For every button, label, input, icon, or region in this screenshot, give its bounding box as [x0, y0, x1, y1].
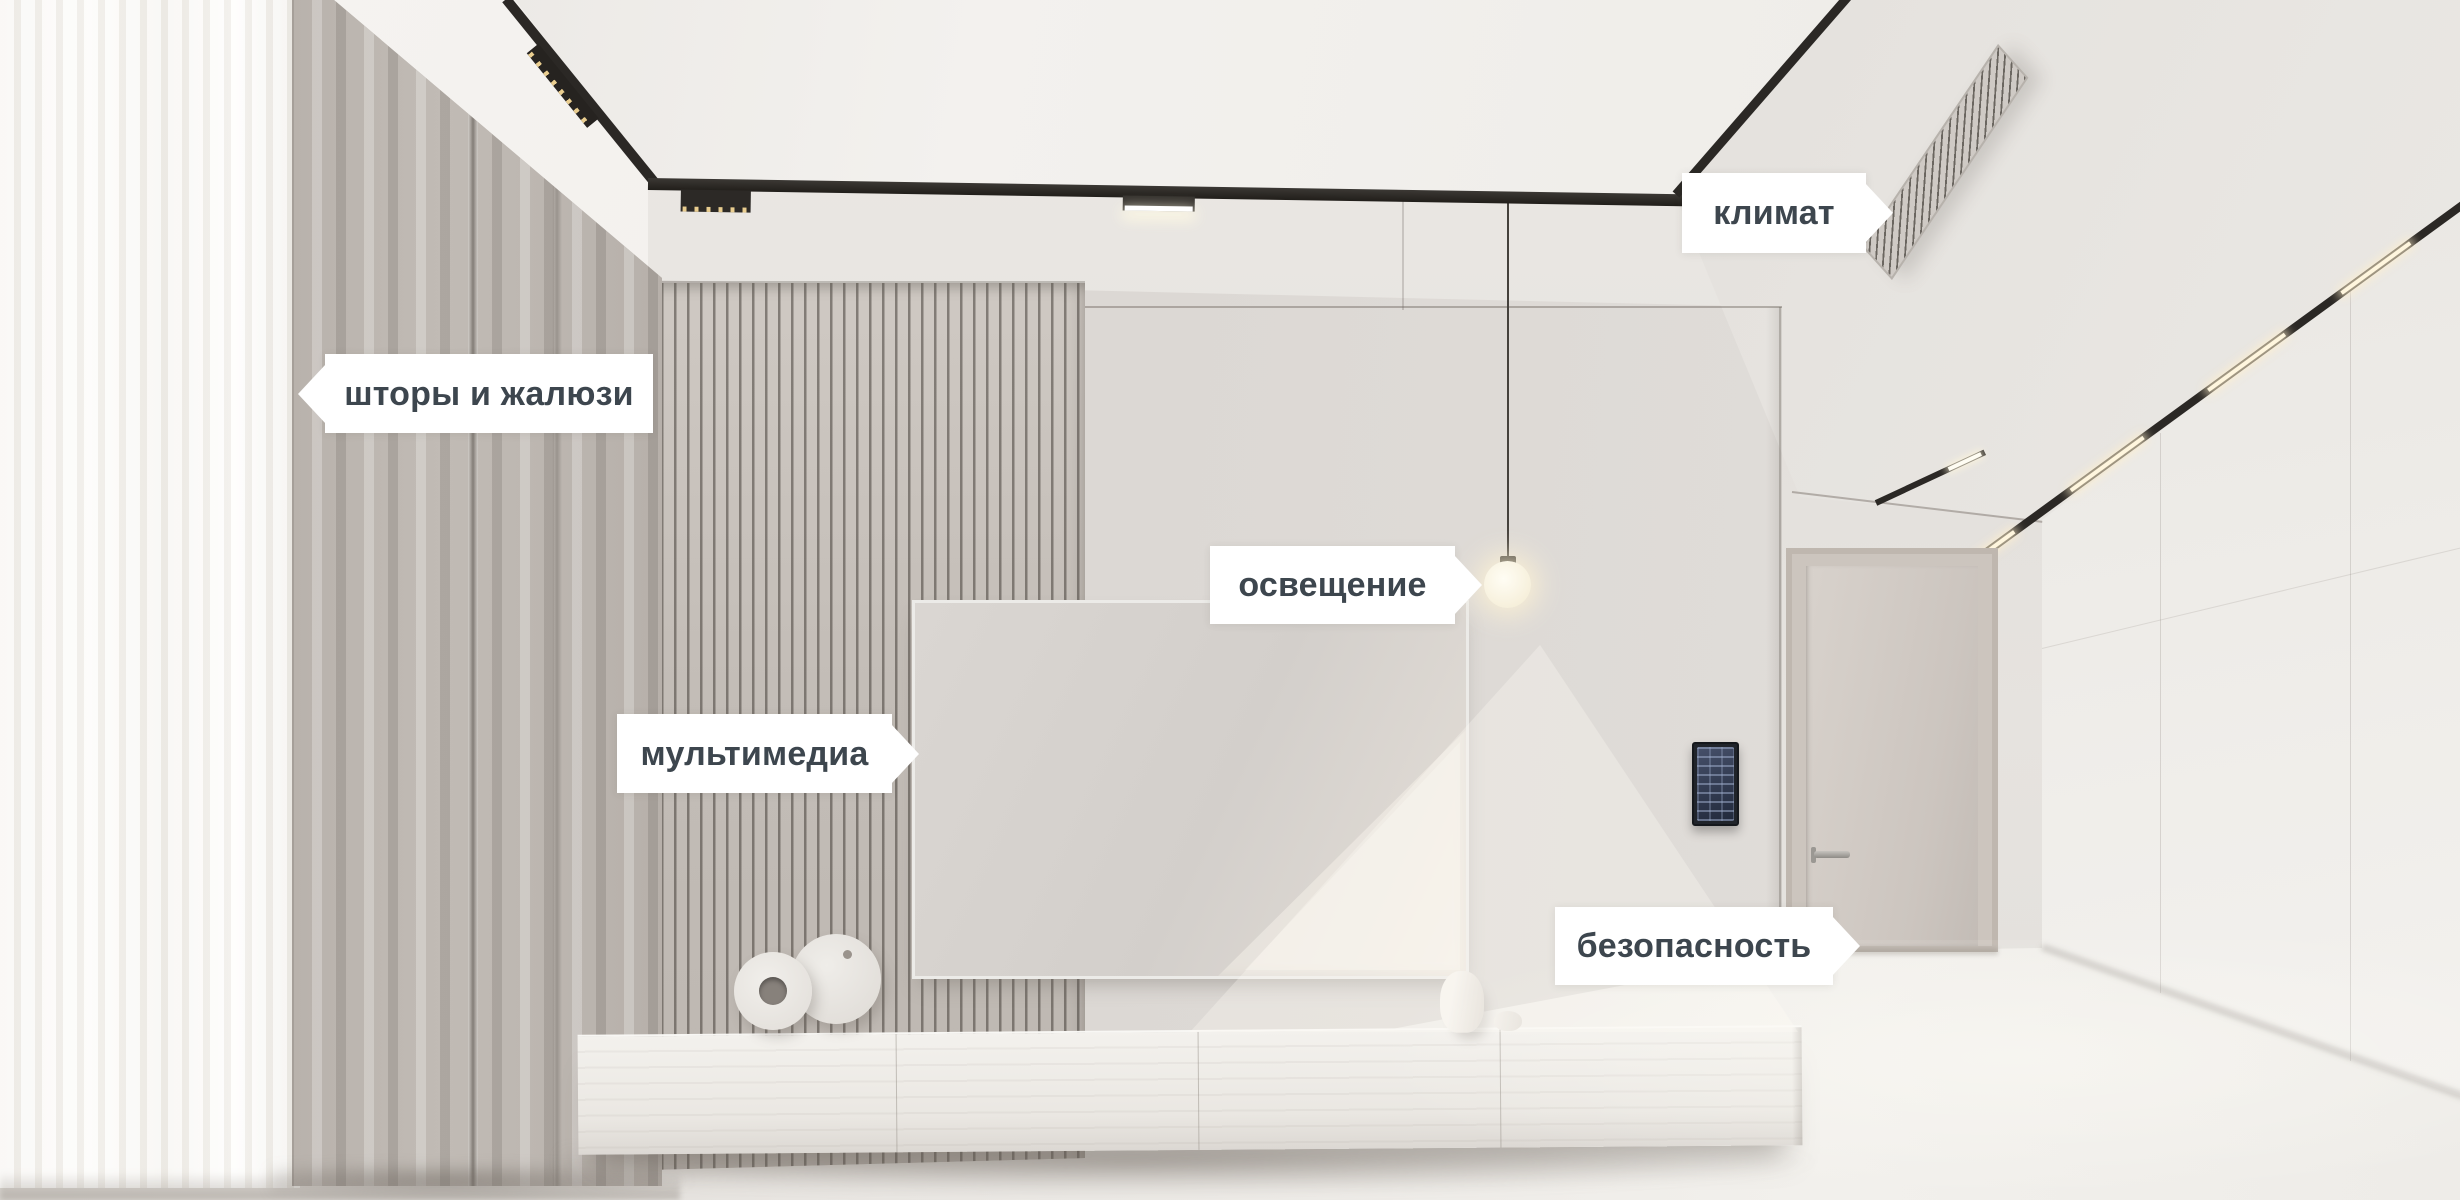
door-frame: [1786, 548, 1998, 952]
callout-arrow-right-icon: [1832, 916, 1860, 976]
track-linear-light: [1123, 195, 1195, 211]
callout-label: освещение: [1238, 568, 1426, 602]
wall-touchscreen-panel: [1692, 742, 1739, 826]
pendant-cord: [1507, 198, 1509, 560]
pendant-bulb-light: [1484, 561, 1531, 608]
door-panel: [1806, 566, 1978, 946]
track-spot-module-icon: [681, 190, 751, 213]
corner-shading: [1766, 307, 1782, 957]
callout-security[interactable]: безопасность: [1555, 907, 1833, 985]
led-dots-icon: [683, 207, 749, 213]
callout-curtains-blinds[interactable]: шторы и жалюзи: [325, 354, 653, 433]
callout-multimedia[interactable]: мультимедиа: [617, 714, 892, 793]
donut-hole-icon: [759, 977, 787, 1005]
cabinet-door-seam: [896, 1034, 898, 1152]
touchscreen-display: [1697, 747, 1734, 821]
callout-arrow-right-icon: [1865, 183, 1893, 243]
wall-panel-seam-horizontal: [1085, 306, 1782, 308]
callout-climate[interactable]: климат: [1682, 173, 1866, 253]
curtain-fold-shadow: [468, 0, 478, 1186]
wardrobe-seam-1: [2160, 433, 2161, 993]
callout-label: мультимедиа: [641, 737, 869, 771]
callout-arrow-right-icon: [1454, 555, 1482, 615]
cabinet-door-seam: [1198, 1032, 1200, 1150]
wall-donut-decor: [734, 952, 812, 1030]
door-frame-inner: [1792, 554, 1992, 946]
callout-arrow-right-icon: [891, 724, 919, 784]
callout-lighting[interactable]: освещение: [1210, 546, 1455, 624]
callout-label: шторы и жалюзи: [344, 377, 634, 411]
callout-label: климат: [1713, 196, 1834, 230]
door-handle: [1814, 851, 1850, 858]
wall-panel-seam-vertical: [1402, 198, 1404, 310]
smart-home-room-visualization: шторы и жалюзи климат освещение мультиме…: [0, 0, 2460, 1200]
sheer-curtain: [0, 0, 300, 1188]
light-bar-glow: [1125, 205, 1193, 211]
sunlight-patch-floor: [1350, 940, 2460, 1200]
callout-label: безопасность: [1577, 929, 1812, 963]
disc-dot-icon: [843, 950, 852, 959]
callout-arrow-left-icon: [298, 364, 326, 424]
